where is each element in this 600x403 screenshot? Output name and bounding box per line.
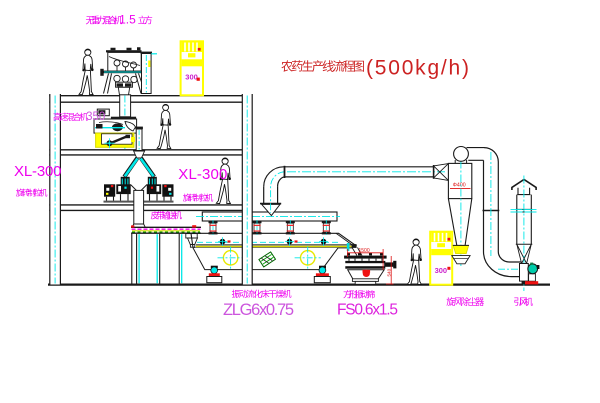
svg-text:高速混合机350: 高速混合机350 <box>53 111 105 123</box>
svg-text:旋风除尘器: 旋风除尘器 <box>446 296 484 307</box>
svg-text:300: 300 <box>435 266 448 275</box>
svg-text:振动流化床干燥机: 振动流化床干燥机 <box>232 288 292 299</box>
svg-text:1500: 1500 <box>359 248 370 254</box>
svg-text:(500kg/h): (500kg/h) <box>366 57 469 80</box>
svg-text:FS0.6x1.5: FS0.6x1.5 <box>337 302 398 319</box>
svg-text:300: 300 <box>185 73 198 82</box>
svg-text:农药生产线流程图: 农药生产线流程图 <box>281 59 365 74</box>
svg-text:旋转制粒机: 旋转制粒机 <box>16 187 48 197</box>
svg-text:皮带输送机: 皮带输送机 <box>151 211 183 221</box>
svg-text:540: 540 <box>387 268 392 276</box>
svg-text:旋转制粒机: 旋转制粒机 <box>183 193 214 203</box>
svg-text:Φ400: Φ400 <box>453 183 466 189</box>
svg-text:XL-300: XL-300 <box>178 166 227 183</box>
svg-text:XL-300: XL-300 <box>14 163 62 180</box>
svg-text:无重力混合机1.5立方: 无重力混合机1.5立方 <box>86 13 153 27</box>
svg-text:引风机: 引风机 <box>513 296 533 307</box>
svg-text:方形振动筛: 方形振动筛 <box>343 288 376 299</box>
svg-text:ZLG6x0.75: ZLG6x0.75 <box>223 301 294 319</box>
